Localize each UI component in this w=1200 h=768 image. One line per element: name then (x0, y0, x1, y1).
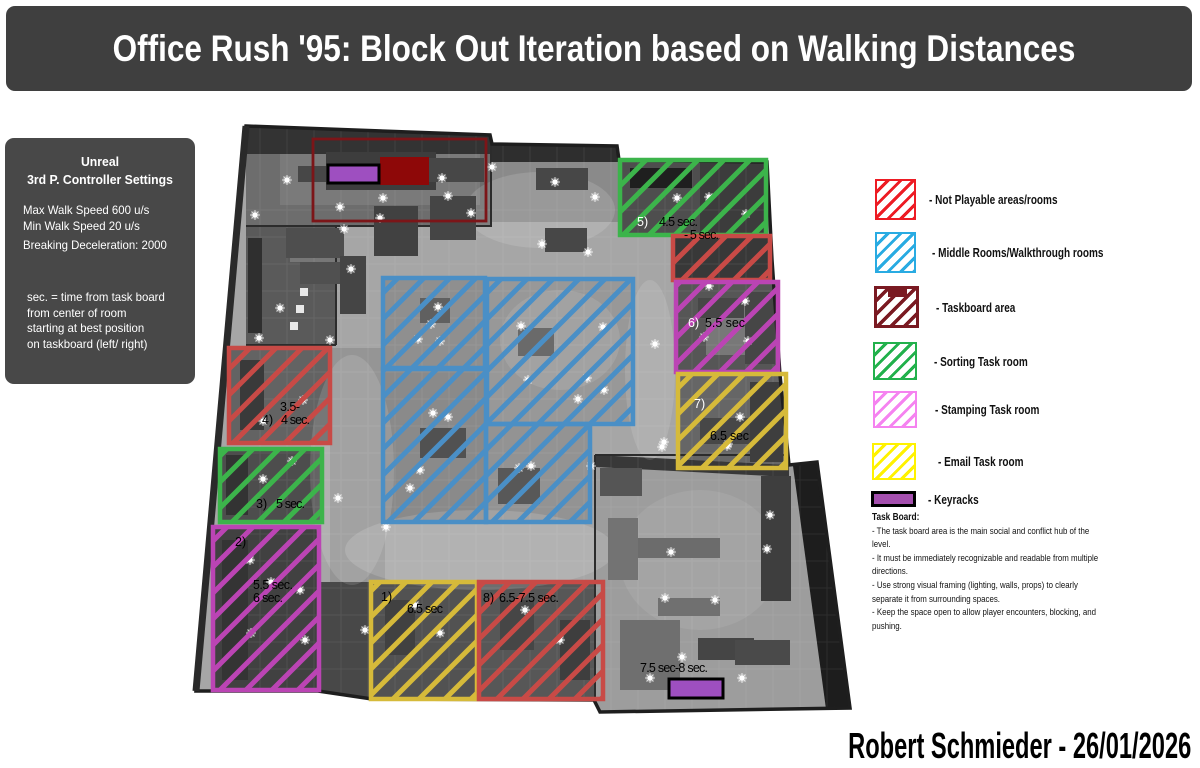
svg-text:2): 2) (235, 535, 246, 549)
svg-text:1): 1) (381, 590, 392, 604)
svg-text:6 sec.: 6 sec. (253, 591, 283, 605)
svg-text:5): 5) (637, 215, 648, 229)
svg-text:7.5 sec-8 sec.: 7.5 sec-8 sec. (640, 661, 708, 675)
svg-text:8): 8) (483, 591, 494, 605)
svg-text:6.5 sec: 6.5 sec (710, 429, 749, 443)
svg-text:4 sec.: 4 sec. (281, 413, 310, 427)
svg-text:6.5-7.5 sec.: 6.5-7.5 sec. (499, 591, 559, 605)
svg-text:3): 3) (256, 497, 267, 511)
svg-text:5.5 sec: 5.5 sec (705, 316, 745, 330)
svg-text:6.5 sec: 6.5 sec (407, 602, 443, 616)
svg-text:- 5 sec.: - 5 sec. (684, 228, 719, 242)
svg-text:4.5 sec.: 4.5 sec. (659, 215, 698, 229)
svg-text:6): 6) (688, 316, 699, 330)
svg-text:3.5-: 3.5- (280, 400, 300, 414)
svg-text:5.5 sec.: 5.5 sec. (253, 578, 293, 592)
svg-text:5 sec.: 5 sec. (276, 497, 305, 511)
svg-text:7): 7) (694, 397, 705, 411)
svg-text:4): 4) (262, 413, 273, 427)
